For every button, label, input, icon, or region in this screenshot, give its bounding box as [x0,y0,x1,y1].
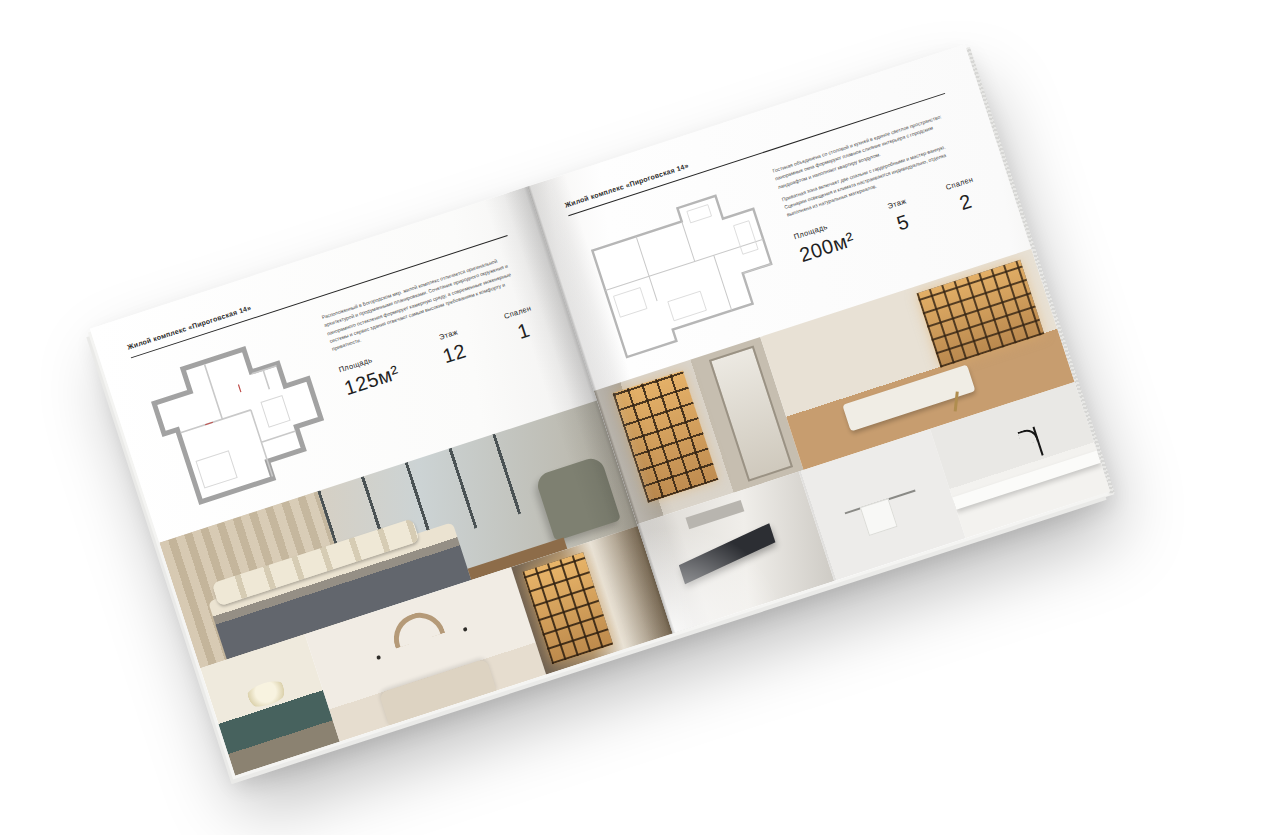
brochure-spread: Жилой комплекс «Пироговская 14» Располож… [90,44,1110,775]
towel-shape [860,498,898,536]
sconce-shape [376,655,381,660]
bed-shape [379,659,496,726]
stat-floor: Этаж 12 [436,327,469,368]
bouquet-shape [242,677,291,712]
stat-floor-value: 5 [890,208,915,236]
armchair-shape [534,455,621,542]
lit-shelf-grid-shape [917,260,1044,368]
stat-floor-label: Этаж [886,196,907,210]
cooktop-shape [679,523,775,584]
lit-shelf-grid-shape [613,371,718,503]
range-hood-shape [685,500,744,529]
floor-plan-125 [134,319,350,519]
counter-shape [953,451,1101,510]
arch-decor-shape [387,606,445,649]
stat-floor: Этаж 5 [886,196,915,236]
stat-bedrooms-value: 1 [507,316,541,347]
sconce-shape [463,627,468,632]
stat-floor-value: 12 [440,339,469,368]
magazine-mockup-scene: Жилой комплекс «Пироговская 14» Располож… [0,0,1280,835]
stat-bedrooms-value: 2 [949,187,983,218]
stat-bedrooms: Спален 2 [945,174,983,217]
stat-bedrooms: Спален 1 [503,304,541,347]
stat-area: Площадь 200м² [793,215,858,267]
stat-area: Площадь 125м² [338,349,403,401]
gold-leg-shape [954,391,959,411]
